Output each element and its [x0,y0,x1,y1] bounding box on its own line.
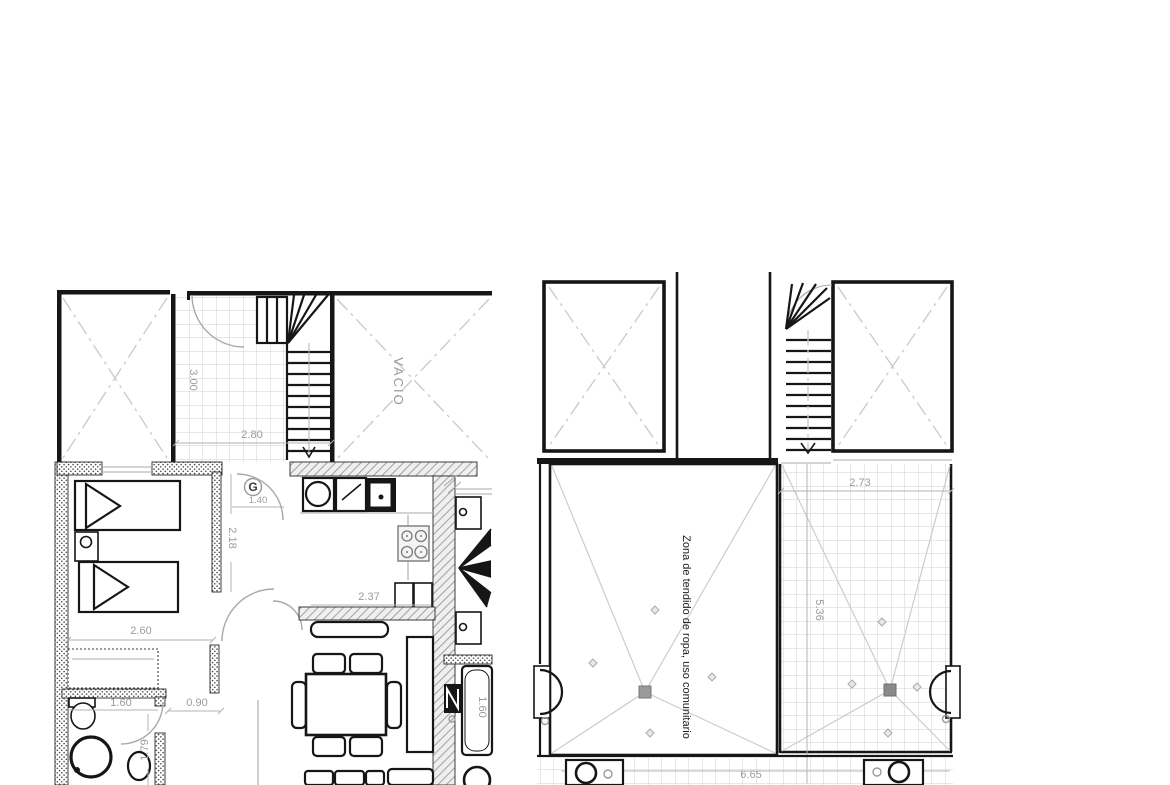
terrace-drain [884,684,896,696]
party-wall [290,462,477,476]
dim-entry-width: 1.40 [249,495,268,506]
dim-bathtub-length: 1.60 [476,696,488,717]
wall-tick [187,291,190,300]
dim-bath-width: 1.60 [110,697,131,709]
tiled-terrace: 2.73 5.36 [778,460,960,784]
chair [350,737,382,756]
dim-walkway-length: 6.65 [740,769,761,781]
shower-drain [74,767,80,773]
kitchen: 2.37 [299,478,435,637]
chair [292,682,306,728]
wall [57,462,102,475]
appliance [336,478,366,511]
dim-terrace-depth: 5.36 [813,599,825,620]
sofa-cushion [305,771,333,785]
wall [299,607,435,620]
left-floor-plan: 2.80 3.00 VACIO [55,290,492,785]
wall [57,290,62,462]
vent-box [946,666,960,718]
void-label: VACIO [391,357,406,407]
chair [313,654,345,673]
right-roof-plan: Zona de tendido de ropa, uso comunitario [534,272,960,785]
void-cross-left [63,298,167,458]
roof-outline [550,464,777,755]
walkway: 6.65 [537,756,953,785]
bedroom: 2.60 [65,481,216,643]
winder-fan [288,295,328,343]
dining-table [306,674,386,735]
dim-bedroom-width: 2.60 [130,625,151,637]
wall [171,294,176,462]
architectural-drawing: 2.80 3.00 VACIO [0,0,1170,785]
gas-meter-label: G [248,480,257,494]
door-arc [273,601,302,630]
drying-zone-roof: Zona de tendido de ropa, uso comunitario [534,464,777,755]
sink-drain [379,495,384,500]
wall [152,462,222,475]
roof-drain [639,686,651,698]
wall [212,472,221,592]
bench [311,622,388,637]
sideboard [407,637,433,752]
dim-hall-depth: 2.18 [226,527,238,548]
party-wall [433,476,455,785]
door-arc [222,589,274,641]
sofa-cushion [366,771,384,785]
chair [350,654,382,673]
winder-treads [257,297,287,343]
closet [68,649,158,688]
roof-staircase [786,283,832,453]
drying-zone-label: Zona de tendido de ropa, uso comunitario [680,535,692,739]
chair [387,682,401,728]
chair [313,737,345,756]
armchair [388,769,433,785]
planter [566,760,623,785]
void-cross-vacio [337,299,489,459]
wall [190,291,492,296]
sofa-cushion [335,771,364,785]
dim-bath-depth: 1.79 [139,739,151,760]
dim-terrace-width: 2.73 [849,477,870,489]
wall [210,645,219,693]
wall [155,733,165,785]
dim-kitchen-width: 2.37 [358,591,379,603]
dim-stair-width: 2.80 [241,429,262,441]
neighbor-stair-fan [459,529,491,607]
dim-landing-depth: 3.00 [187,369,199,390]
wall [57,290,170,295]
wall [55,462,68,785]
floor-plan-canvas: 2.80 3.00 VACIO [0,0,1170,785]
toilet [464,767,490,785]
dim-hall-width: 0.90 [186,697,207,709]
dining-area [258,637,433,785]
vent-box [534,666,550,718]
stair-landing: 2.80 3.00 VACIO [57,290,492,462]
apartment-floor: 2.60 2.18 G 1.40 [55,462,492,785]
bathroom: 1.60 0.90 1.79 [62,649,224,785]
toilet [71,703,95,729]
upper-blocks [537,272,952,464]
wall [330,294,335,462]
wall [444,655,492,664]
